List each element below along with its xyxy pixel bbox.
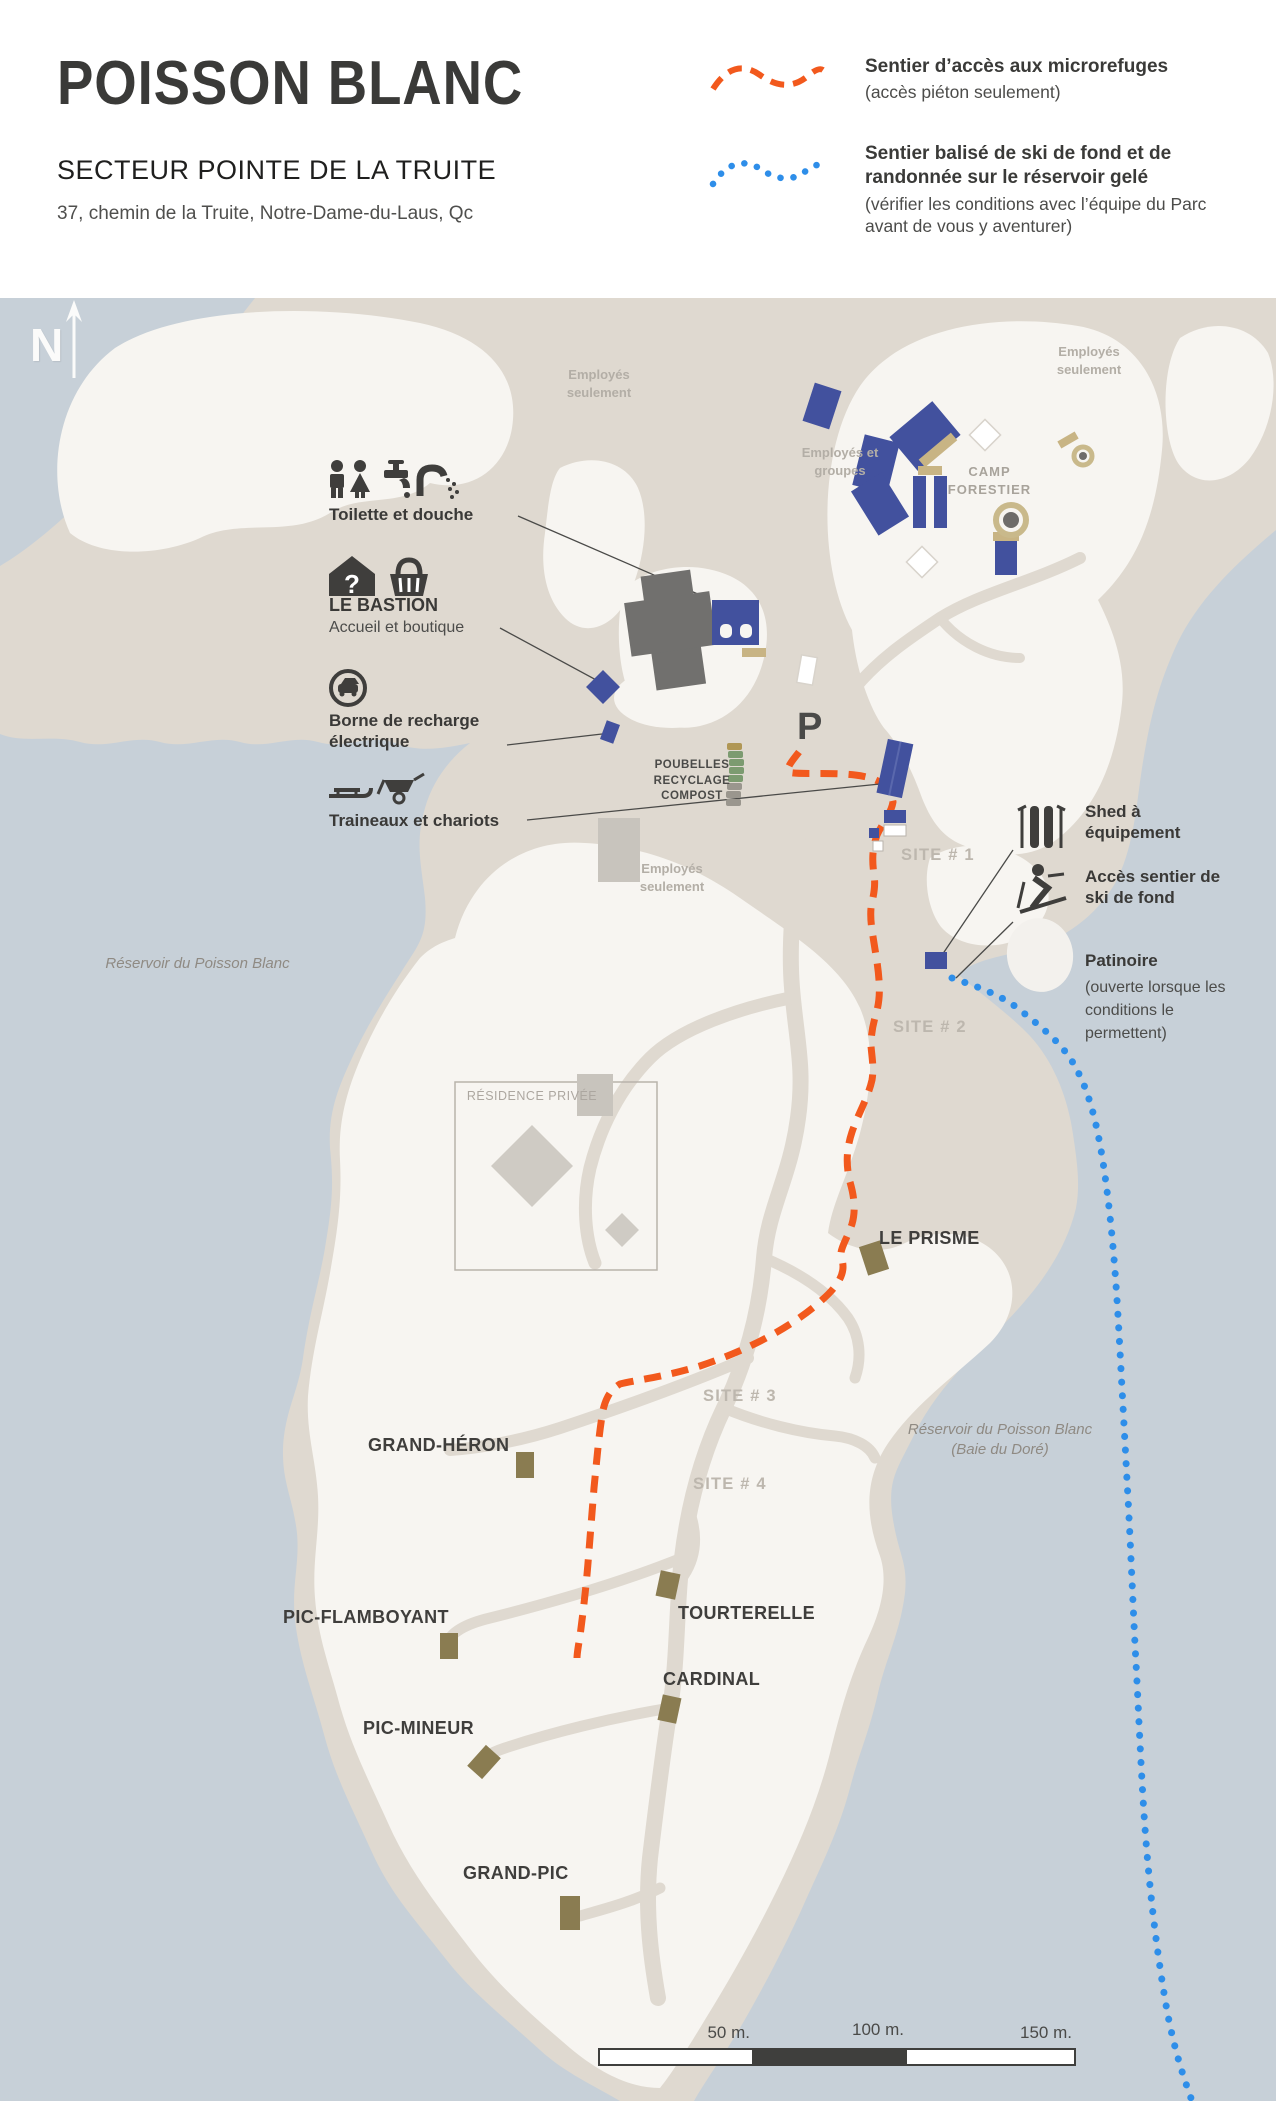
- cardinal-label: CARDINAL: [663, 1669, 760, 1690]
- acces-ski-label: Accès sentier de ski de fond: [1085, 866, 1235, 909]
- legend-ski-sublabel: (vérifier les conditions avec l’équipe d…: [865, 193, 1210, 238]
- access-trail-line: [713, 68, 823, 89]
- zone-employes-mid: Employés seulement: [630, 860, 714, 895]
- traineaux-label: Traineaux et chariots: [329, 810, 499, 831]
- map-terrain: ?: [0, 298, 1276, 2101]
- compass-north-label: N: [30, 318, 63, 372]
- reservoir-label: Réservoir du Poisson Blanc: [90, 954, 305, 974]
- flamboyant-label: PIC-FLAMBOYANT: [283, 1607, 449, 1628]
- cabin-grandpic: [560, 1896, 580, 1930]
- scale-bar: [598, 2048, 1076, 2066]
- site2-label: SITE # 2: [893, 1018, 967, 1037]
- prisme-label: LE PRISME: [879, 1228, 980, 1249]
- park-map-page: { "header": { "title": "POISSON BLANC", …: [0, 0, 1276, 2101]
- site3-label: SITE # 3: [703, 1387, 777, 1406]
- zone-poubelles: POUBELLES RECYCLAGE COMPOST: [650, 758, 734, 805]
- site4-label: SITE # 4: [693, 1475, 767, 1494]
- zone-employes-topright: Employés seulement: [1048, 343, 1130, 378]
- shed-label: Shed à équipement: [1085, 801, 1205, 844]
- tourterelle-label: TOURTERELLE: [678, 1603, 815, 1624]
- legend-ski-trail-swatch: [705, 148, 830, 198]
- park-logo: POISSON BLANC: [57, 48, 523, 119]
- address: 37, chemin de la Truite, Notre-Dame-du-L…: [57, 203, 473, 225]
- header: POISSON BLANC SECTEUR POINTE DE LA TRUIT…: [0, 0, 1276, 298]
- zone-employes-top: Employés seulement: [558, 366, 640, 401]
- bastion-sublabel: Accueil et boutique: [329, 616, 464, 639]
- legend-access-sublabel: (accès piéton seulement): [865, 81, 1210, 103]
- scale-50m: 50 m.: [690, 2023, 750, 2043]
- toilette-label: Toilette et douche: [329, 504, 473, 525]
- ski-trail-line: [713, 163, 822, 184]
- bastion-label: LE BASTION: [329, 594, 438, 617]
- heron-label: GRAND-HÉRON: [368, 1435, 509, 1456]
- sector-title: SECTEUR POINTE DE LA TRUITE: [57, 155, 496, 186]
- scale-150m: 150 m.: [1008, 2023, 1072, 2043]
- legend-ski-trail: Sentier balisé de ski de fond et de rand…: [865, 142, 1210, 237]
- site1-label: SITE # 1: [901, 846, 975, 865]
- zone-residence-privee: RÉSIDENCE PRIVÉE: [462, 1088, 602, 1105]
- legend-access-trail: Sentier d’accès aux microrefuges (accès …: [865, 55, 1210, 104]
- patinoire-label: Patinoire: [1085, 950, 1158, 971]
- zone-employes-groupes: Employés et groupes: [798, 444, 882, 479]
- scale-100m: 100 m.: [838, 2020, 918, 2040]
- legend-ski-label: Sentier balisé de ski de fond et de rand…: [865, 142, 1210, 191]
- borne-label: Borne de recharge électrique: [329, 710, 504, 753]
- scale-bar-dark-segment: [752, 2050, 907, 2064]
- parking-label: P: [797, 706, 822, 749]
- map-area: ?: [0, 298, 1276, 2101]
- grandpic-label: GRAND-PIC: [463, 1863, 569, 1884]
- equipment-shed: [925, 952, 947, 969]
- legend-access-label: Sentier d’accès aux microrefuges: [865, 55, 1210, 79]
- cabin-heron: [516, 1452, 534, 1478]
- mineur-label: PIC-MINEUR: [363, 1718, 474, 1739]
- legend-access-trail-swatch: [705, 55, 830, 105]
- cabin-flamboyant: [440, 1633, 458, 1659]
- zone-camp-forestier: CAMP FORESTIER: [942, 463, 1037, 498]
- baie-label: Réservoir du Poisson Blanc (Baie du Doré…: [890, 1420, 1110, 1459]
- patinoire-sublabel: (ouverte lorsque les conditions le perme…: [1085, 976, 1255, 1046]
